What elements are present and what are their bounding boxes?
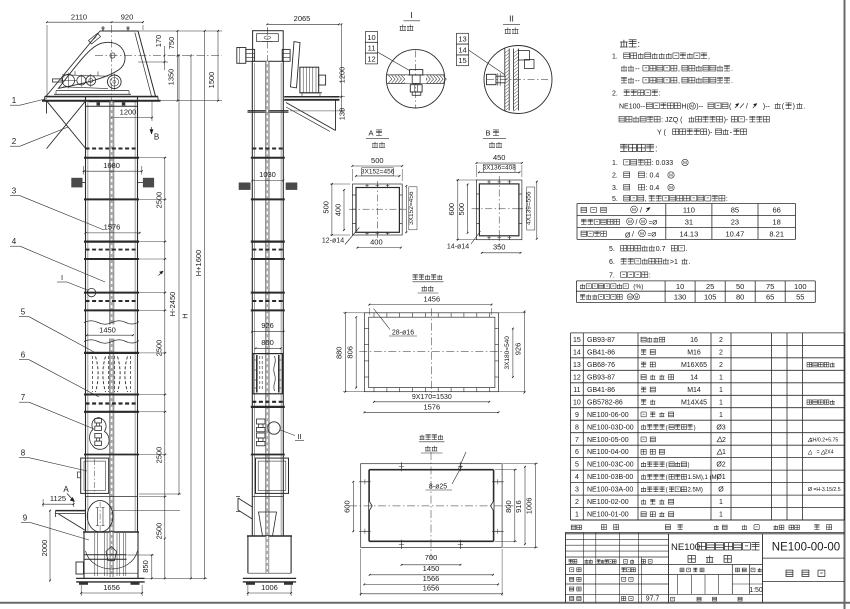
svg-text:.: .	[731, 78, 733, 85]
svg-text:/: /	[640, 208, 642, 215]
svg-text:11: 11	[368, 44, 376, 53]
svg-text:18: 18	[773, 218, 781, 227]
svg-text:1656: 1656	[103, 583, 120, 592]
svg-text:II: II	[509, 14, 514, 24]
svg-text:1576: 1576	[423, 402, 440, 411]
svg-text:1:50: 1:50	[749, 587, 763, 594]
svg-text::: :	[726, 196, 728, 203]
svg-text:2: 2	[719, 362, 723, 369]
svg-text:1576: 1576	[104, 223, 121, 232]
svg-text:15: 15	[458, 56, 466, 65]
svg-text:M16: M16	[687, 349, 701, 356]
svg-text:25: 25	[706, 282, 714, 291]
svg-text:10: 10	[676, 282, 684, 291]
svg-text:100: 100	[794, 282, 807, 291]
svg-text:--: --	[635, 78, 640, 85]
svg-text:(: (	[666, 463, 668, 469]
svg-text:926: 926	[513, 343, 522, 356]
svg-text:1450: 1450	[99, 325, 116, 334]
svg-text:1: 1	[722, 449, 726, 456]
svg-text:A: A	[368, 129, 373, 138]
svg-text:,: ,	[708, 54, 710, 61]
svg-text:: 0.4: : 0.4	[646, 185, 660, 192]
svg-text:6: 6	[21, 351, 26, 360]
svg-text:NE100-03B-00: NE100-03B-00	[587, 474, 633, 481]
svg-text:400: 400	[370, 238, 383, 247]
svg-text:2: 2	[719, 337, 723, 344]
svg-text:2.: 2.	[612, 91, 618, 98]
svg-text:800: 800	[504, 500, 513, 513]
svg-text:1656: 1656	[423, 584, 440, 593]
svg-text:14-ø14: 14-ø14	[447, 243, 469, 250]
svg-text:12: 12	[573, 374, 581, 381]
svg-text:(: (	[666, 475, 668, 481]
svg-text:2.: 2.	[612, 173, 618, 180]
svg-text:13: 13	[573, 362, 581, 369]
svg-text:M: M	[632, 207, 636, 212]
svg-text:)-: )-	[724, 117, 729, 124]
svg-text:2065: 2065	[294, 14, 311, 23]
svg-text:2500: 2500	[155, 340, 164, 357]
svg-text:M: M	[628, 294, 632, 299]
svg-text:7: 7	[575, 437, 579, 444]
svg-text:1456: 1456	[423, 295, 440, 304]
svg-text:65: 65	[766, 293, 774, 302]
svg-text:5: 5	[21, 308, 26, 317]
svg-text:NE100-03D-00: NE100-03D-00	[587, 424, 634, 431]
svg-text:1350: 1350	[167, 69, 176, 86]
svg-text:H: H	[181, 313, 190, 318]
svg-text::: :	[659, 91, 661, 98]
svg-text:M14X45: M14X45	[681, 399, 707, 406]
svg-text:)--: )--	[696, 104, 704, 111]
svg-text:2500: 2500	[155, 523, 164, 540]
svg-text:400: 400	[333, 204, 342, 217]
svg-text:9: 9	[575, 412, 579, 419]
svg-text:--: --	[635, 66, 640, 73]
svg-text:2500: 2500	[155, 447, 164, 464]
svg-text:1125: 1125	[50, 494, 66, 503]
svg-text:16: 16	[690, 337, 698, 344]
svg-text:.: .	[689, 259, 691, 266]
svg-text:3X152=456: 3X152=456	[361, 168, 395, 175]
svg-text:450: 450	[493, 153, 506, 162]
svg-text:M: M	[640, 231, 644, 236]
svg-text:1450: 1450	[423, 564, 440, 573]
svg-text:2: 2	[12, 137, 17, 146]
svg-text:,: ,	[678, 78, 680, 85]
svg-text:Ø: Ø	[808, 487, 813, 493]
svg-text:3.: 3.	[612, 185, 618, 192]
svg-text:1: 1	[719, 399, 723, 406]
svg-text:55: 55	[796, 293, 804, 302]
svg-text:130: 130	[338, 108, 347, 121]
svg-text:GB5782-86: GB5782-86	[587, 399, 623, 406]
svg-text:6: 6	[575, 449, 579, 456]
svg-text:H(: H(	[681, 104, 689, 111]
svg-text:2X4: 2X4	[824, 450, 833, 456]
svg-text::: :	[649, 273, 651, 280]
svg-text:350: 350	[493, 243, 506, 252]
svg-text:8.21: 8.21	[769, 229, 784, 238]
svg-text:GB93-87: GB93-87	[587, 374, 615, 381]
svg-text:2110: 2110	[71, 13, 87, 22]
svg-text:)-: )-	[708, 130, 713, 137]
svg-text:Ø3: Ø3	[716, 424, 725, 431]
svg-text:): )	[694, 425, 696, 431]
svg-text:9X170=1530: 9X170=1530	[412, 394, 452, 401]
svg-text:8: 8	[575, 424, 579, 431]
svg-text:4: 4	[575, 474, 579, 481]
svg-text:50: 50	[736, 282, 744, 291]
svg-text:II: II	[297, 432, 301, 441]
svg-text:12-ø14: 12-ø14	[322, 237, 344, 244]
svg-text:600: 600	[447, 203, 456, 216]
svg-text:A: A	[63, 485, 69, 494]
svg-text:M: M	[683, 160, 687, 165]
svg-text:2: 2	[719, 349, 723, 356]
svg-text:12: 12	[367, 54, 375, 63]
svg-text:: 0.033: : 0.033	[652, 160, 674, 167]
svg-text:Y (: Y (	[657, 130, 666, 137]
svg-text:170: 170	[154, 35, 163, 48]
svg-text:>1: >1	[670, 259, 678, 266]
svg-text:1: 1	[12, 96, 17, 105]
svg-text:14: 14	[458, 45, 466, 54]
svg-text:3X136=408: 3X136=408	[482, 165, 516, 172]
svg-text:Ø: Ø	[718, 487, 724, 494]
svg-text:NE100-02-00: NE100-02-00	[587, 499, 629, 506]
svg-text:500: 500	[321, 201, 330, 214]
svg-text:M: M	[669, 173, 673, 178]
svg-text:NE100-06-00: NE100-06-00	[587, 412, 629, 419]
svg-text:,: ,	[645, 196, 647, 203]
svg-text:NE100-05-00: NE100-05-00	[587, 437, 629, 444]
svg-text:I: I	[61, 273, 63, 282]
svg-text:.: .	[804, 104, 806, 111]
svg-text:1: 1	[719, 412, 723, 419]
svg-text:NE100-00-00: NE100-00-00	[772, 541, 840, 553]
svg-text:1030: 1030	[259, 170, 276, 179]
svg-text:5.: 5.	[612, 196, 618, 203]
svg-text:1200: 1200	[120, 108, 137, 117]
svg-text:806: 806	[345, 346, 354, 359]
svg-text:5: 5	[575, 462, 579, 469]
svg-text:M: M	[628, 219, 632, 224]
svg-text:: JZQ (: : JZQ (	[661, 117, 683, 124]
svg-text:13: 13	[458, 35, 466, 44]
svg-text:.: .	[686, 246, 688, 253]
svg-text:3: 3	[575, 487, 579, 494]
svg-text:2.5M): 2.5M)	[688, 488, 703, 494]
svg-text:B: B	[485, 129, 490, 138]
svg-text:NE100-01-00: NE100-01-00	[587, 512, 629, 519]
svg-text:105: 105	[704, 293, 717, 302]
svg-text:1: 1	[719, 387, 723, 394]
svg-text::: :	[638, 39, 641, 49]
svg-text:130: 130	[674, 293, 687, 302]
svg-text:110: 110	[683, 206, 695, 215]
svg-text:GB93-87: GB93-87	[587, 337, 615, 344]
svg-text:880: 880	[334, 347, 343, 360]
svg-text:4: 4	[12, 237, 17, 246]
svg-text:1.: 1.	[612, 54, 618, 61]
svg-text:I: I	[410, 10, 412, 20]
svg-text:(: (	[666, 425, 668, 431]
svg-text:Ø1: Ø1	[716, 474, 725, 481]
svg-text:7: 7	[21, 393, 26, 402]
svg-text:850: 850	[141, 560, 150, 573]
svg-text:14: 14	[690, 374, 698, 381]
svg-text:=Ø: =Ø	[648, 231, 657, 238]
svg-text:926: 926	[261, 321, 274, 330]
svg-text:9: 9	[23, 514, 28, 523]
svg-text:B: B	[154, 133, 159, 142]
svg-text:)--: )--	[763, 104, 771, 111]
svg-text:1.: 1.	[612, 160, 618, 167]
svg-text:2500: 2500	[155, 192, 164, 209]
svg-text:2000: 2000	[40, 540, 49, 557]
svg-text:: 0.4: : 0.4	[646, 173, 660, 180]
svg-text:(%): (%)	[633, 284, 643, 291]
svg-text:GB41-86: GB41-86	[587, 349, 615, 356]
svg-text:3X180=540: 3X180=540	[504, 336, 511, 370]
svg-text:NE100-04-00: NE100-04-00	[587, 449, 629, 456]
svg-text:10: 10	[573, 399, 581, 406]
svg-text:66: 66	[773, 206, 781, 215]
svg-text:10.47: 10.47	[726, 229, 745, 238]
svg-text:700: 700	[425, 553, 438, 562]
svg-text:14.13: 14.13	[680, 229, 699, 238]
svg-text:916: 916	[514, 500, 523, 513]
svg-text:31: 31	[685, 218, 693, 227]
svg-text:1: 1	[719, 374, 723, 381]
svg-text:H-2450: H-2450	[168, 292, 177, 317]
svg-text:600: 600	[343, 500, 352, 513]
svg-text:=H/0.2+5.75: =H/0.2+5.75	[810, 437, 839, 443]
svg-text:H+1600: H+1600	[194, 250, 203, 276]
svg-text:=H-3.15/2.5: =H-3.15/2.5	[813, 487, 840, 493]
svg-text:920: 920	[121, 13, 134, 22]
svg-text:28-ø16: 28-ø16	[392, 330, 414, 337]
svg-text:750: 750	[167, 37, 176, 50]
svg-text:500: 500	[371, 156, 384, 165]
svg-text:M: M	[641, 219, 645, 224]
svg-text:7.: 7.	[609, 273, 615, 280]
svg-text:=Ø: =Ø	[649, 219, 658, 226]
svg-text:M: M	[635, 294, 639, 299]
svg-text:80: 80	[736, 293, 744, 302]
svg-text:/: /	[632, 231, 634, 238]
svg-text:NE100--: NE100--	[619, 104, 646, 111]
svg-text:0.7: 0.7	[656, 246, 666, 253]
svg-text:NE100-03A-00: NE100-03A-00	[587, 487, 633, 494]
svg-text:23: 23	[731, 218, 739, 227]
svg-text:M: M	[669, 185, 673, 190]
svg-text:1006: 1006	[525, 498, 534, 515]
svg-text:.: .	[731, 66, 733, 73]
svg-text:3: 3	[12, 187, 17, 196]
svg-text:Ø2: Ø2	[716, 462, 725, 469]
svg-text:1006: 1006	[261, 583, 278, 592]
svg-text:/: /	[636, 219, 638, 226]
svg-text:1: 1	[575, 512, 579, 519]
svg-text:(: (	[666, 488, 668, 494]
svg-text:800: 800	[261, 338, 274, 347]
svg-text:97.7: 97.7	[646, 596, 660, 603]
svg-text:,: ,	[678, 66, 680, 73]
svg-text:75: 75	[766, 282, 774, 291]
svg-text:NE100-03C-00: NE100-03C-00	[587, 462, 634, 469]
svg-text:6.: 6.	[609, 259, 615, 266]
svg-text:1: 1	[719, 512, 723, 519]
svg-text:11: 11	[573, 387, 580, 394]
svg-text:1500: 1500	[207, 72, 216, 89]
svg-text:GB41-86: GB41-86	[587, 387, 615, 394]
svg-text:1: 1	[719, 499, 723, 506]
svg-text:M: M	[690, 104, 694, 109]
svg-text:/: /	[746, 104, 748, 111]
svg-text:85: 85	[731, 206, 739, 215]
svg-text:10: 10	[367, 33, 375, 42]
svg-text:15: 15	[573, 337, 581, 344]
svg-text:1200: 1200	[338, 67, 347, 84]
svg-text::: :	[655, 144, 658, 154]
svg-text:1680: 1680	[103, 161, 120, 170]
svg-text:): )	[688, 463, 690, 469]
svg-text:M14: M14	[687, 387, 701, 394]
svg-text:M16X65: M16X65	[681, 362, 707, 369]
svg-text:1.5M),1 (M): 1.5M),1 (M)	[688, 475, 719, 481]
svg-text:NE100: NE100	[671, 542, 700, 553]
svg-text:1566: 1566	[423, 574, 440, 583]
svg-text:14: 14	[573, 349, 581, 356]
svg-text:5.: 5.	[609, 246, 615, 253]
svg-text:GB68-76: GB68-76	[587, 362, 615, 369]
svg-text:Ø: Ø	[625, 232, 631, 239]
svg-text:8-ø25: 8-ø25	[429, 483, 447, 490]
svg-text:2: 2	[722, 437, 726, 444]
svg-text:=: =	[816, 450, 819, 456]
svg-text:2: 2	[575, 499, 579, 506]
svg-text:500: 500	[457, 203, 466, 216]
svg-text:): )	[793, 104, 795, 111]
svg-text:8: 8	[21, 449, 26, 458]
